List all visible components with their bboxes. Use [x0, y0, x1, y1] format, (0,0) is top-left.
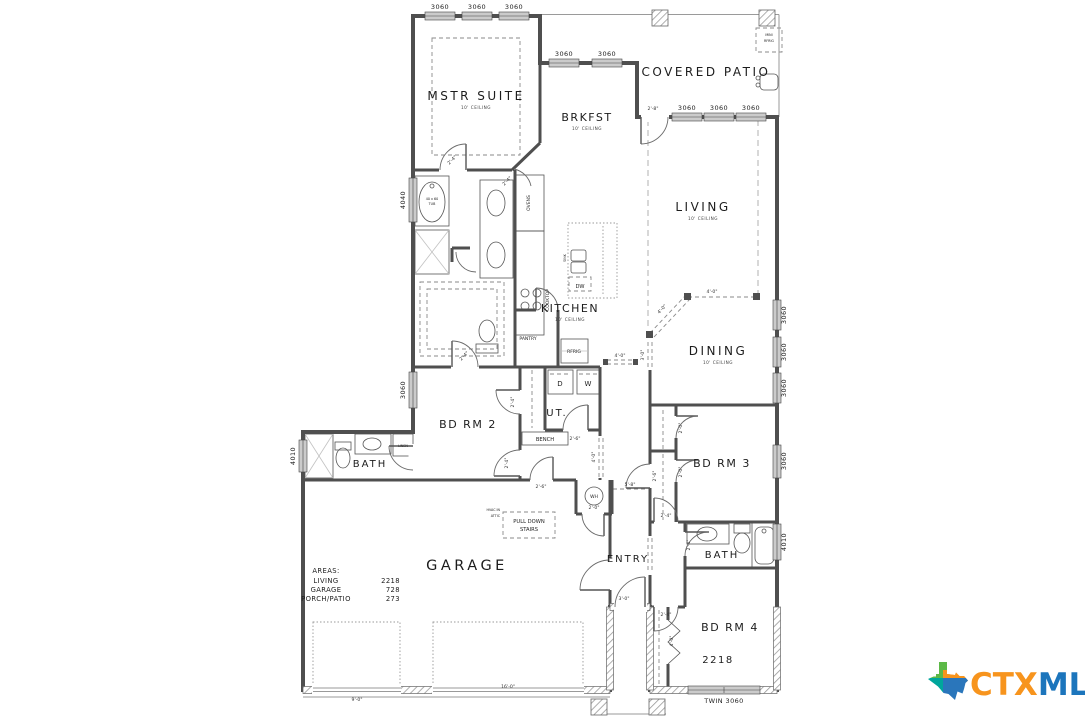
- pull-down-stairs-label: PULL DOWN: [513, 519, 545, 525]
- sink-label: SINK: [563, 253, 567, 262]
- openings: [312, 112, 669, 696]
- dryer-label: D: [557, 380, 562, 388]
- ceiling-note-living: 10' CEILING: [688, 216, 718, 221]
- window-label-3060: 3060: [505, 3, 523, 11]
- window-label-3060: 3060: [780, 306, 788, 324]
- dim-label: 2'-4": [458, 350, 470, 362]
- room-label-bdrm2: BD RM 2: [439, 418, 497, 431]
- rfrig-label: RFRIG: [567, 349, 581, 355]
- dim-label: 5'-8": [625, 482, 636, 488]
- logo-text-mls: MLS: [1038, 667, 1085, 703]
- window-label-3060: 3060: [742, 104, 760, 112]
- window-label-4040: 4040: [399, 191, 407, 209]
- window-label-3060: 3060: [431, 3, 449, 11]
- window-label-3060: 3060: [399, 381, 407, 399]
- ovens-label: OVENS: [526, 195, 532, 211]
- window-label-3060: 3060: [780, 343, 788, 361]
- dim-label: 2'-4": [686, 540, 692, 551]
- dim-label: 2'-4": [661, 513, 672, 519]
- room-label-living: LIVING: [675, 200, 730, 214]
- areas-row-name: PORCH/PATIO: [301, 595, 351, 603]
- dishwasher-label: DW: [575, 284, 584, 290]
- water-heater-label: WH: [590, 494, 598, 500]
- dim-label: 2'-4": [501, 175, 513, 187]
- dim-label: 2'-0": [678, 467, 684, 478]
- dim-label: 2'-4": [504, 458, 510, 469]
- window-label-3060: 3060: [598, 50, 616, 58]
- dim-label: 2'-4": [510, 397, 516, 408]
- dim-label: 4'-0": [591, 452, 597, 463]
- tub-label: 40 x 60: [426, 197, 438, 201]
- areas-title: AREAS:: [312, 567, 339, 575]
- texas-icon: [928, 662, 968, 700]
- areas-row-name: LIVING: [313, 577, 338, 585]
- dim-label-garage-door-2: 16'-0": [501, 684, 515, 690]
- areas-row-value: 2218: [381, 577, 400, 585]
- linen-label: LINEN: [398, 444, 408, 448]
- bench-label: BENCH: [536, 437, 554, 443]
- dim-label: 2'-6": [570, 436, 581, 442]
- window-label-3060: 3060: [678, 104, 696, 112]
- dim-label: 2'-6": [536, 484, 547, 490]
- window-label-twin-3060: TWIN 3060: [703, 697, 743, 705]
- pantry-label: PANTRY: [519, 336, 536, 342]
- areas-table: AREAS: LIVING GARAGE PORCH/PATIO 2218 72…: [301, 567, 400, 603]
- plan-number: 2218: [702, 655, 733, 666]
- floor-plan-drawing: MSTR SUITE 10' CEILING BRKFST 10' CEILIN…: [0, 0, 1085, 723]
- dim-label-garage-door-1: 9'-0": [352, 697, 363, 703]
- dim-label: 4'-0": [615, 353, 626, 359]
- room-label-covered-patio: COVERED PATIO: [642, 65, 771, 79]
- room-label-dining: DINING: [689, 344, 748, 358]
- window-label-3060: 3060: [468, 3, 486, 11]
- ceiling-note-dining: 10' CEILING: [703, 360, 733, 365]
- ctxmls-logo: CTXMLS: [928, 662, 1085, 703]
- areas-row-name: GARAGE: [311, 586, 342, 594]
- hvac-note: ATTIC: [491, 514, 501, 518]
- dim-label: 4'-0": [656, 303, 668, 315]
- mini-frig-label: RFRIG: [764, 39, 774, 43]
- areas-row-value: 728: [386, 586, 400, 594]
- dim-label: 2'-4": [661, 612, 672, 618]
- logo-text: CTXMLS: [970, 667, 1085, 703]
- cooktop-label: COOKTOP: [545, 289, 551, 311]
- room-label-entry: ENTRY: [607, 554, 649, 565]
- ceiling-note-kitchen: 10' CEILING: [555, 317, 585, 322]
- dim-label: 2'-6": [652, 471, 658, 482]
- dashed-guides: [313, 28, 782, 688]
- room-label-brkfst: BRKFST: [561, 111, 612, 124]
- dim-label: 2'-0": [589, 505, 600, 511]
- dim-label: 4'-0": [707, 289, 718, 295]
- room-label-garage: GARAGE: [426, 558, 508, 574]
- dim-label: 3'-0": [640, 350, 646, 361]
- floor-plan-image: MSTR SUITE 10' CEILING BRKFST 10' CEILIN…: [0, 0, 1085, 723]
- window-label-3060: 3060: [780, 452, 788, 470]
- dim-label: 4'-0": [669, 636, 675, 647]
- ceiling-note-brkfst: 10' CEILING: [572, 126, 602, 131]
- room-label-ut: UT.: [546, 408, 567, 419]
- window-label-3060: 3060: [780, 379, 788, 397]
- areas-row-value: 273: [386, 595, 400, 603]
- room-label-bath3: BATH: [705, 550, 740, 561]
- dim-label: 2'-0": [678, 423, 684, 434]
- window-label-4010: 4010: [289, 447, 297, 465]
- window-label-3060: 3060: [710, 104, 728, 112]
- mini-frig-label: MINI: [765, 33, 772, 37]
- ceiling-note-mstr: 10' CEILING: [461, 105, 491, 110]
- room-label-mstr-suite: MSTR SUITE: [427, 89, 524, 103]
- room-label-bath2: BATH: [353, 459, 388, 470]
- fixtures: [305, 74, 778, 568]
- pull-down-stairs-label: STAIRS: [520, 527, 538, 533]
- window-label-3060: 3060: [555, 50, 573, 58]
- tub-label: TUB: [428, 202, 436, 206]
- dim-label: 2'-4": [446, 154, 458, 166]
- washer-label: W: [585, 380, 592, 388]
- logo-text-ctx: CTX: [970, 667, 1038, 703]
- hvac-note: HVAC IN: [486, 508, 500, 512]
- room-label-bdrm4: BD RM 4: [701, 621, 759, 634]
- dim-label: 3'-0": [619, 596, 630, 602]
- window-label-4010: 4010: [780, 533, 788, 551]
- room-label-bdrm3: BD RM 3: [693, 457, 751, 470]
- dim-label: 2'-8": [648, 106, 659, 112]
